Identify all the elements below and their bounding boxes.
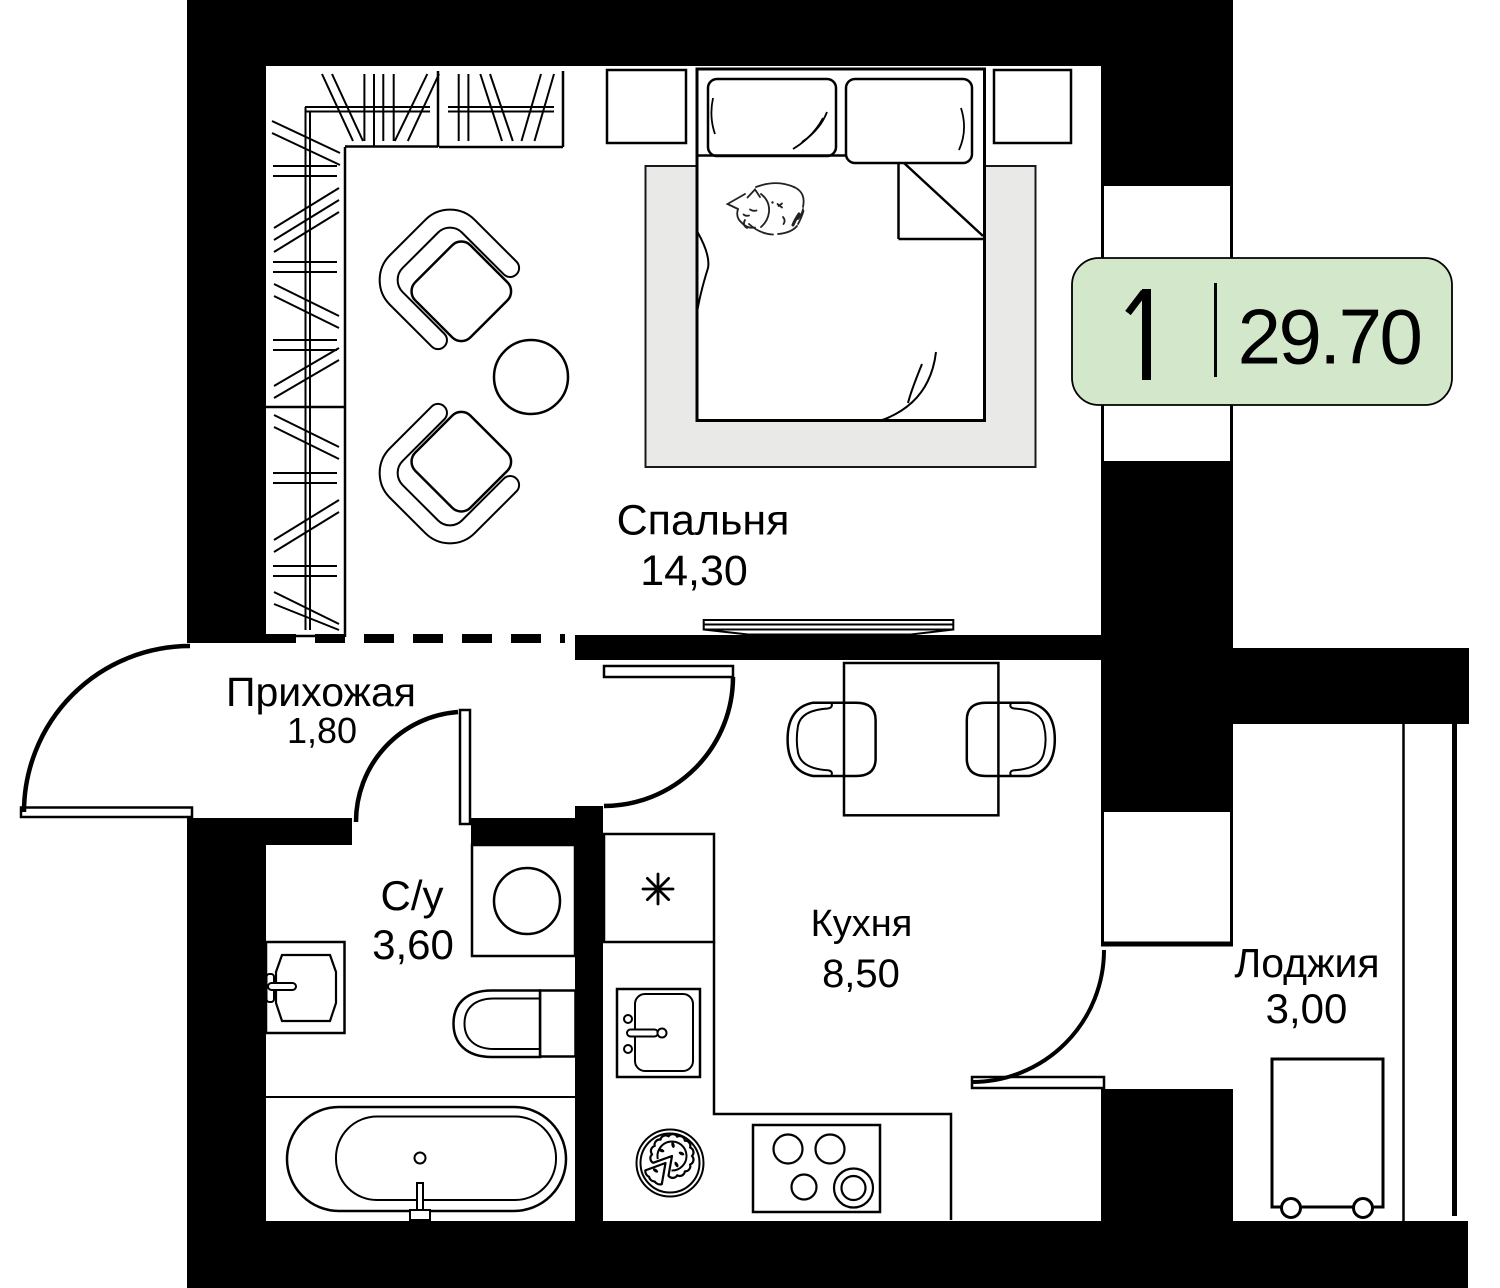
svg-text:3,60: 3,60 <box>372 921 454 968</box>
svg-text:Прихожая: Прихожая <box>226 669 416 715</box>
svg-text:1,80: 1,80 <box>287 710 357 751</box>
svg-text:Лоджия: Лоджия <box>1234 940 1379 986</box>
svg-text:8,50: 8,50 <box>822 952 900 996</box>
svg-text:С/у: С/у <box>381 872 444 919</box>
svg-text:29.70: 29.70 <box>1238 293 1421 381</box>
svg-text:Кухня: Кухня <box>811 903 913 945</box>
svg-text:3,00: 3,00 <box>1266 985 1348 1032</box>
svg-text:Спальня: Спальня <box>617 497 790 545</box>
svg-text:14,30: 14,30 <box>640 547 748 595</box>
